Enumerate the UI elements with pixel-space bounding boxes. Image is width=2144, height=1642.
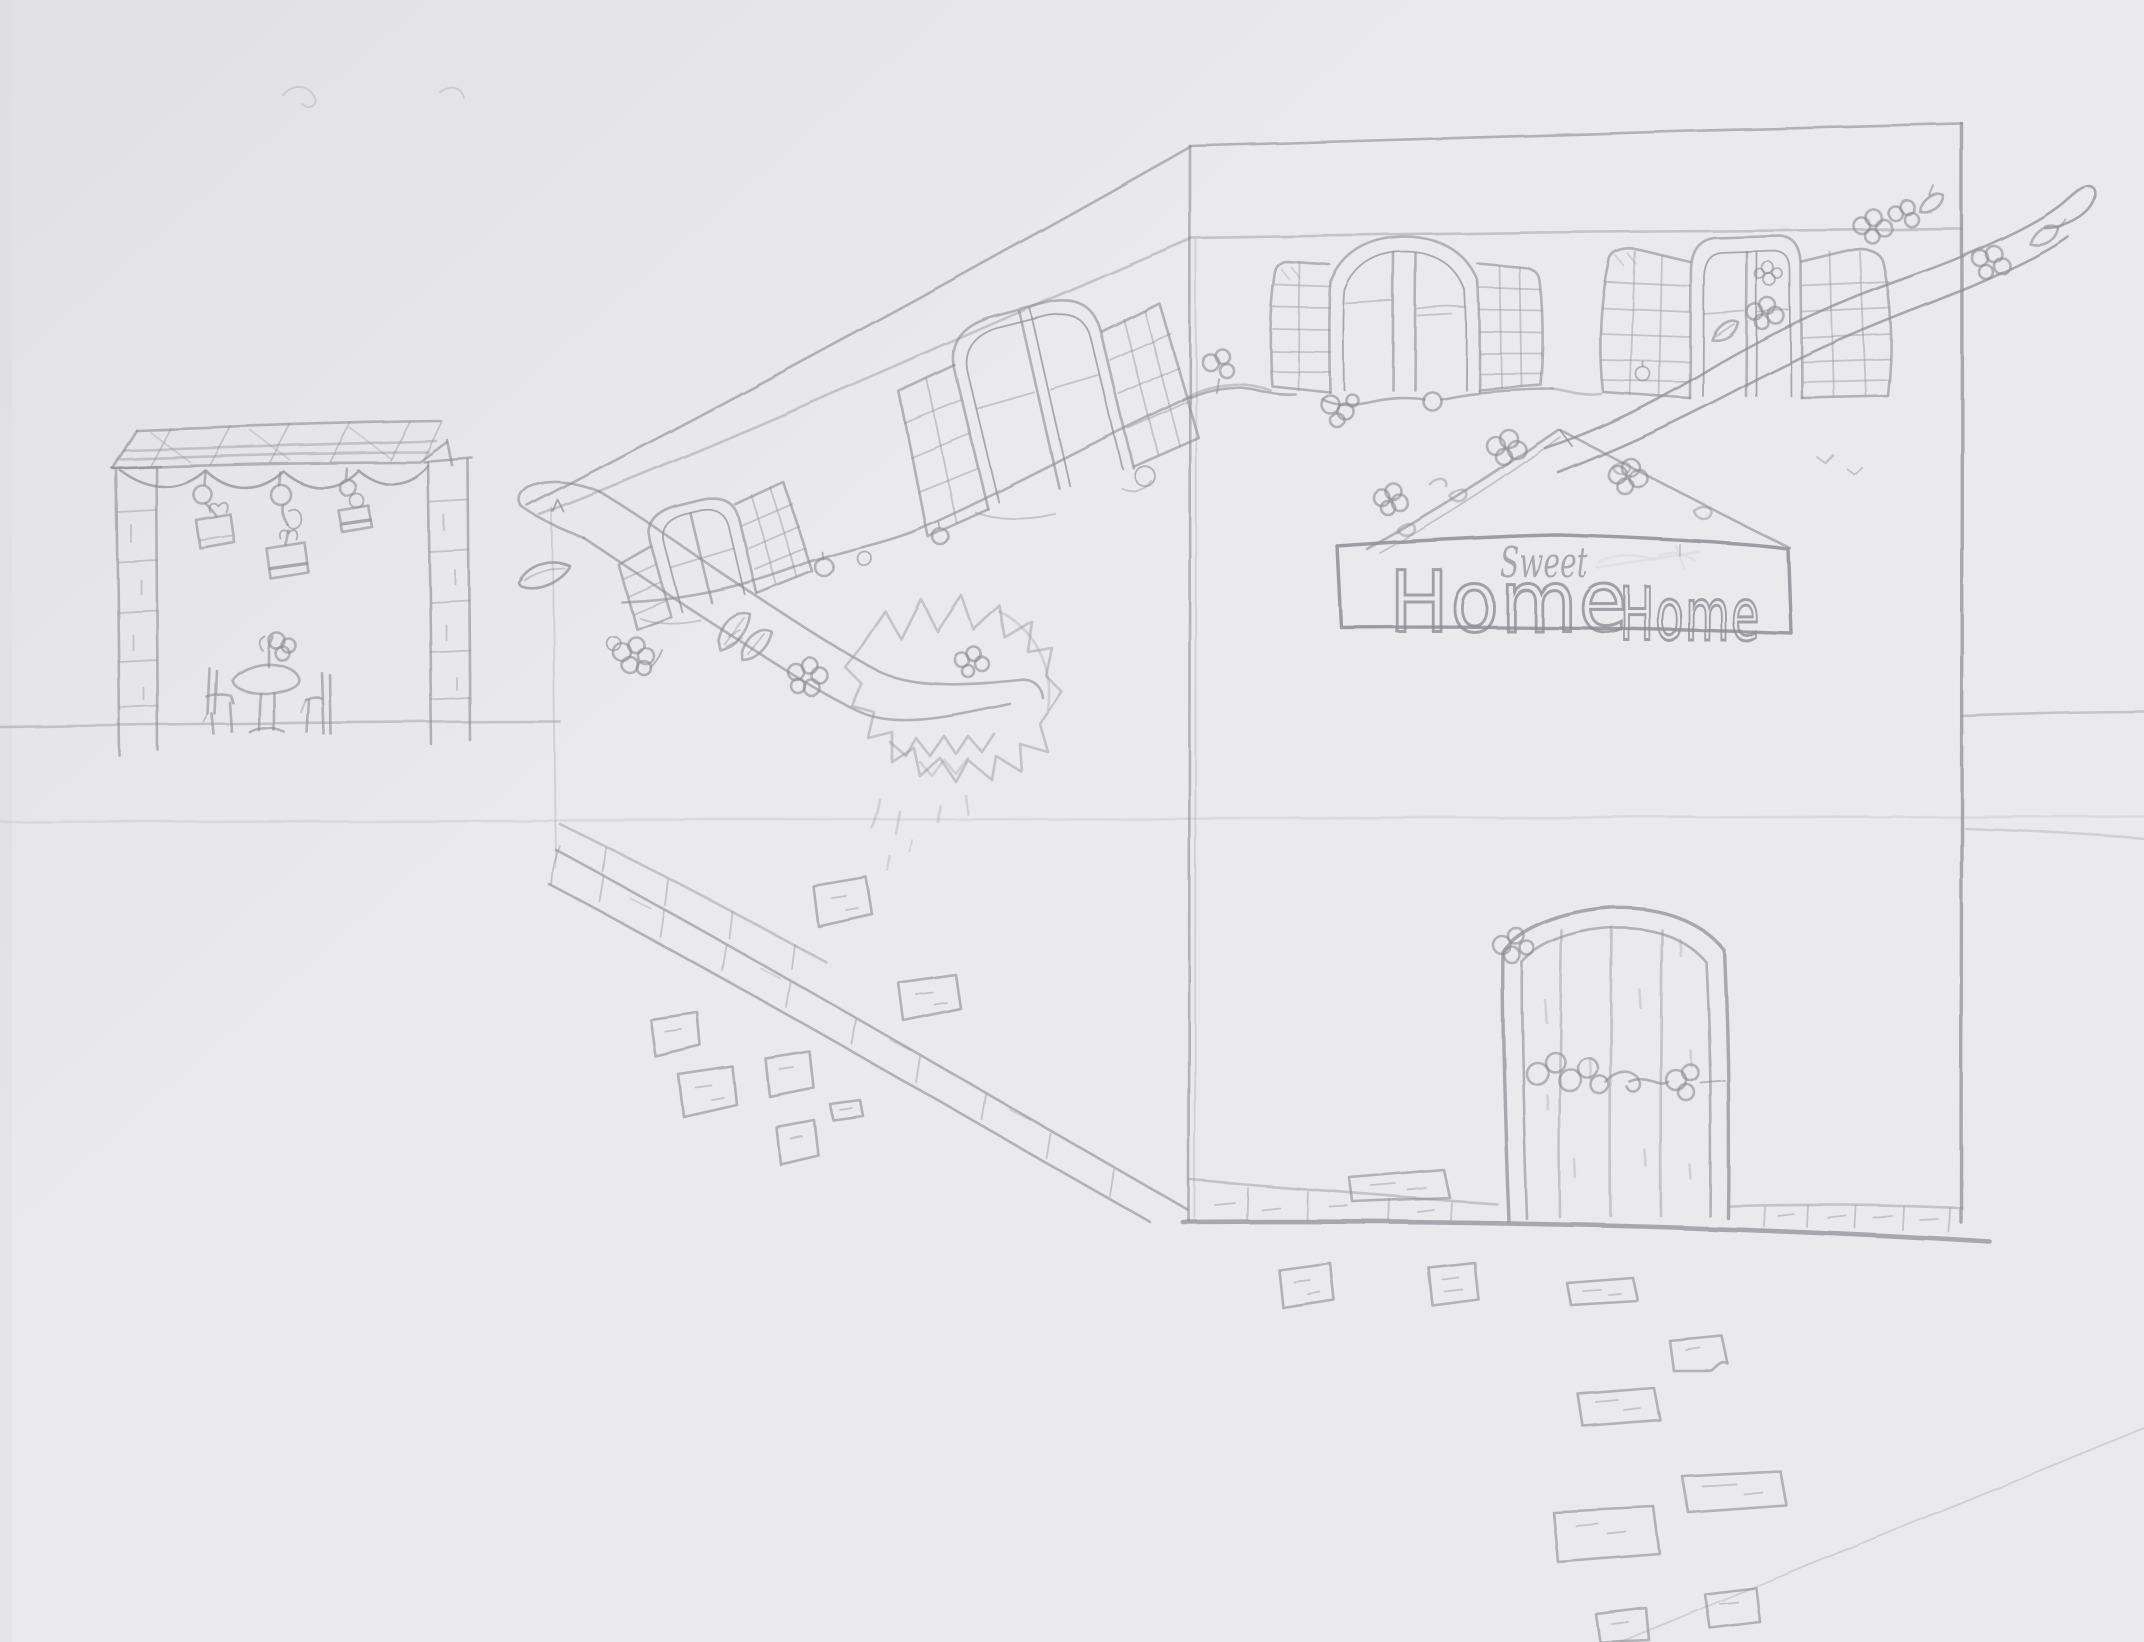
- sign-word-sweet: Sweet: [1500, 538, 1588, 587]
- front-right-edge: [1961, 124, 1963, 1222]
- sketch-canvas: Home Sweet Home: [0, 0, 2144, 1642]
- front-left-edge: [1189, 146, 1190, 1221]
- front-left-edge-double: [1195, 240, 1196, 1218]
- photo-of-drawing: Home Sweet Home: [0, 0, 2144, 1642]
- door-plank-2: [1611, 928, 1612, 1216]
- door-plank-3: [1661, 930, 1662, 1216]
- sign-word-home-right: Home: [1620, 573, 1760, 658]
